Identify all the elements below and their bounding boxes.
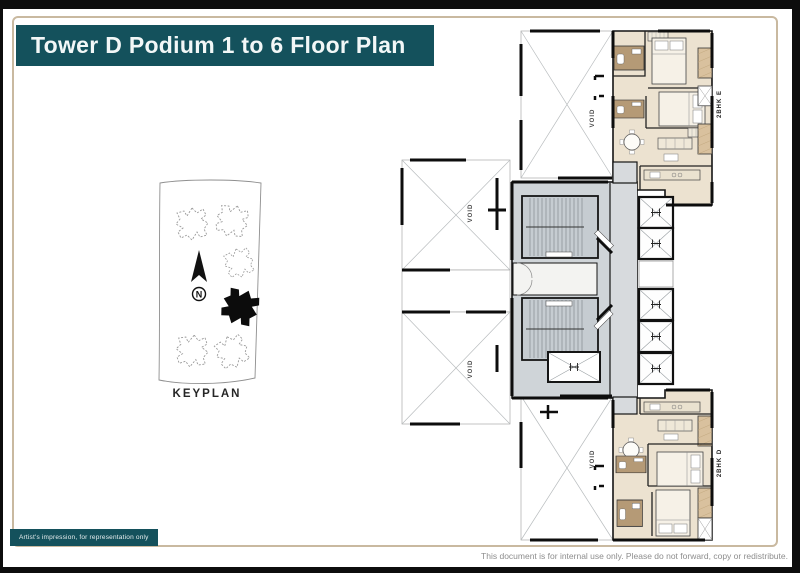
keyplan: N KEYPLAN [159,180,265,400]
void-left-lower [402,312,510,424]
balcony [698,488,712,518]
floor-plan: VOID VOID VOID VOID 2BHK E 2BHK D [402,31,723,540]
lift-icon [639,353,673,384]
bathroom [614,100,644,118]
balcony [698,48,712,78]
kitchen-counter [644,402,700,412]
bed [657,452,703,486]
lift-icon [639,197,673,228]
north-label: N [196,290,203,300]
unit-label-2bhk-e: 2BHK E [717,90,723,118]
void-top [521,31,613,178]
bed [656,490,690,536]
void-label: VOID [590,450,596,469]
plan-graphics: N KEYPLAN [0,0,800,573]
lift-icon [639,228,673,259]
void-label: VOID [468,204,474,223]
bathroom [617,500,643,526]
refuge-band [402,270,510,312]
keyplan-caption: KEYPLAN [173,388,242,400]
void-bottom [521,396,613,540]
bathroom [614,46,644,70]
bed [652,38,686,84]
lift-icon [639,321,673,352]
sofa [658,420,692,431]
internal-use-disclaimer: This document is for internal use only. … [481,551,788,561]
void-label: VOID [468,360,474,379]
page-title: Tower D Podium 1 to 6 Floor Plan [16,25,434,66]
artist-note-badge: Artist's impression, for representation … [10,529,158,546]
lift-lobby-corridor [610,183,637,397]
bathroom [616,456,646,473]
floor-plan-document: N KEYPLAN [0,0,800,573]
kitchen-counter [644,170,700,180]
core [512,162,637,414]
sofa [658,138,692,149]
service-shaft [548,352,600,382]
lift-icon [639,289,673,320]
lift-bank [639,197,673,384]
unit-label-2bhk-d: 2BHK D [717,449,723,477]
keyplan-boundary [159,180,261,384]
balcony [698,416,712,446]
void-label: VOID [590,109,596,128]
void-left-upper [402,160,510,270]
balcony [698,124,712,154]
